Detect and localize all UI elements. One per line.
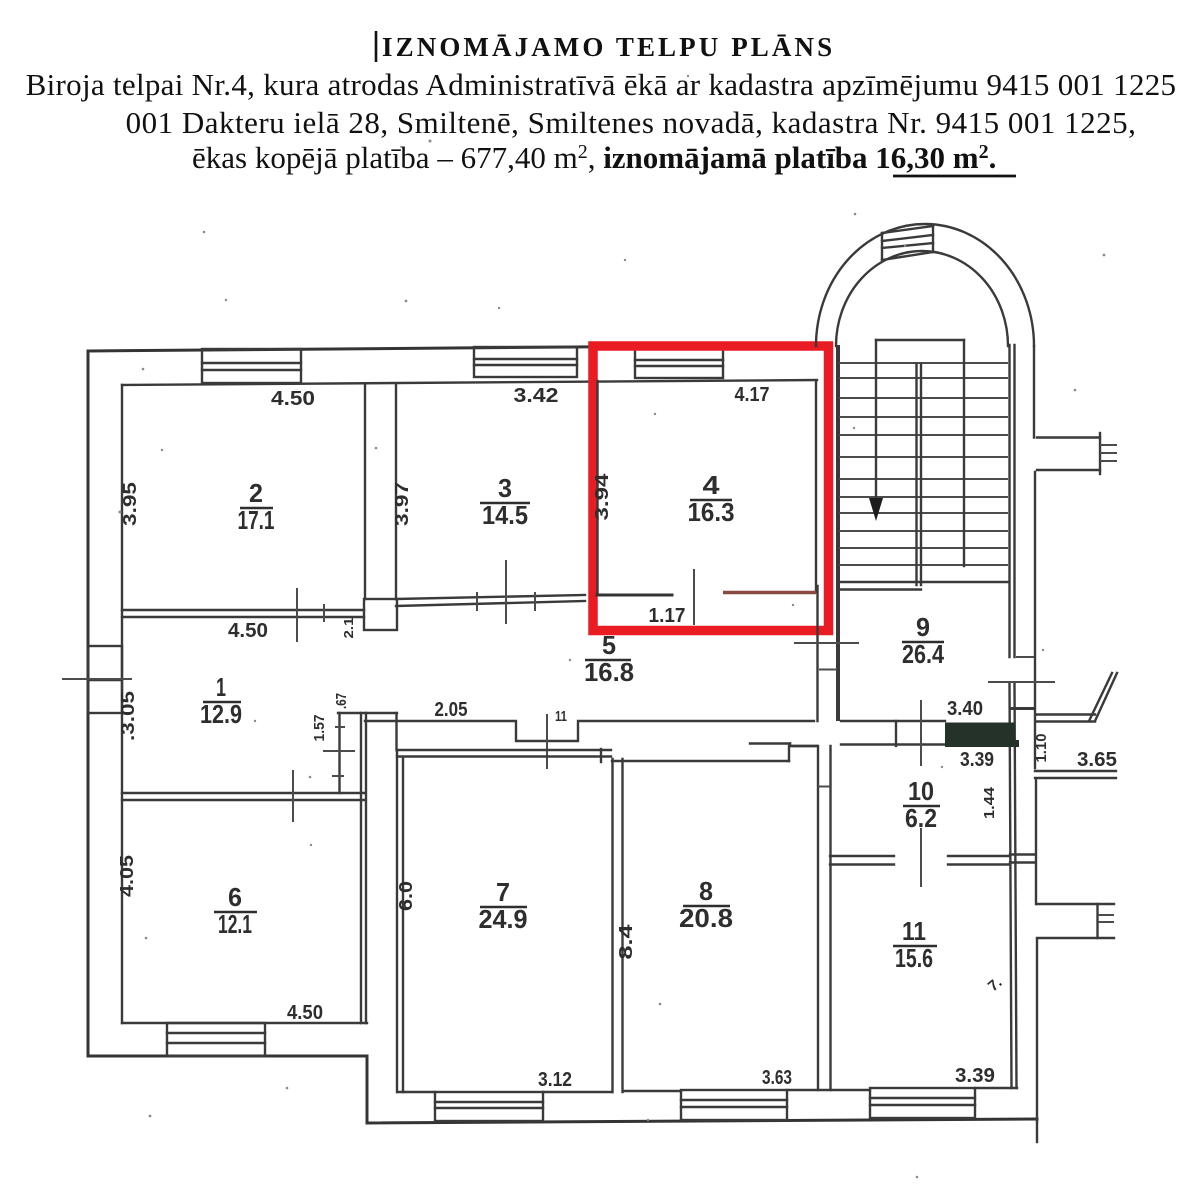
svg-text:IZNOMĀJAMO TELPU PLĀNS: IZNOMĀJAMO TELPU PLĀNS: [382, 32, 835, 62]
svg-text:2: 2: [249, 478, 263, 508]
svg-text:20.8: 20.8: [679, 903, 733, 933]
svg-text:4: 4: [703, 470, 721, 500]
svg-text:3.65: 3.65: [1077, 749, 1117, 771]
svg-text:15.6: 15.6: [895, 943, 933, 973]
svg-text:24.9: 24.9: [479, 904, 528, 934]
svg-text:2.1: 2.1: [341, 618, 356, 639]
svg-text:12.1: 12.1: [218, 909, 252, 939]
svg-text:11: 11: [555, 708, 567, 725]
svg-text:.67: .67: [333, 693, 350, 709]
svg-text:4.50: 4.50: [271, 388, 315, 410]
svg-text:3.40: 3.40: [947, 698, 983, 720]
svg-text:9: 9: [916, 612, 930, 642]
svg-text:3.39: 3.39: [960, 749, 994, 771]
svg-text:3.63: 3.63: [762, 1067, 792, 1089]
svg-text:4.50: 4.50: [287, 1002, 323, 1024]
svg-text:1.44: 1.44: [981, 786, 998, 819]
svg-text:4.50: 4.50: [228, 620, 268, 642]
svg-text:1.57: 1.57: [311, 715, 328, 742]
svg-text:1: 1: [216, 672, 226, 702]
svg-text:8.4: 8.4: [616, 925, 636, 960]
svg-text:4.05: 4.05: [117, 855, 137, 897]
svg-text:3.95: 3.95: [120, 482, 140, 526]
svg-text:001 Dakteru ielā 28, Smiltenē: 001 Dakteru ielā 28, Smiltenē, Smiltenes…: [126, 105, 1137, 140]
svg-text:7.: 7.: [985, 974, 1006, 995]
svg-text:3.94: 3.94: [592, 474, 612, 521]
svg-text:6: 6: [228, 882, 242, 912]
svg-text:10: 10: [908, 776, 934, 806]
svg-text:3.97: 3.97: [392, 482, 412, 526]
svg-text:7: 7: [496, 877, 510, 907]
svg-text:17.1: 17.1: [238, 505, 275, 535]
svg-text:6.0: 6.0: [396, 881, 416, 911]
svg-text:8: 8: [699, 876, 713, 906]
svg-text:3.12: 3.12: [538, 1069, 572, 1091]
svg-text:6.2: 6.2: [905, 803, 937, 833]
svg-text:16.3: 16.3: [688, 497, 735, 527]
svg-text:3.39: 3.39: [955, 1065, 995, 1087]
svg-text:Biroja telpai Nr.4, kura atrod: Biroja telpai Nr.4, kura atrodas Adminis…: [26, 67, 1177, 102]
svg-text:4.17: 4.17: [735, 384, 770, 406]
svg-text:2.05: 2.05: [435, 699, 468, 721]
svg-text:3: 3: [498, 473, 512, 503]
svg-text:16.8: 16.8: [584, 657, 634, 687]
svg-text:.3.05: .3.05: [118, 691, 138, 741]
svg-text:5: 5: [602, 630, 616, 660]
svg-text:26.4: 26.4: [902, 639, 944, 669]
svg-text:14.5: 14.5: [482, 500, 528, 530]
svg-text:3.42: 3.42: [514, 385, 559, 407]
svg-text:12.9: 12.9: [200, 699, 242, 729]
svg-text:1.17: 1.17: [649, 605, 686, 627]
svg-text:ēkas kopējā platība – 677,40 m: ēkas kopējā platība – 677,40 m2, iznomāj…: [192, 140, 996, 175]
svg-text:1.10: 1.10: [1033, 734, 1050, 763]
svg-text:11: 11: [902, 916, 926, 946]
